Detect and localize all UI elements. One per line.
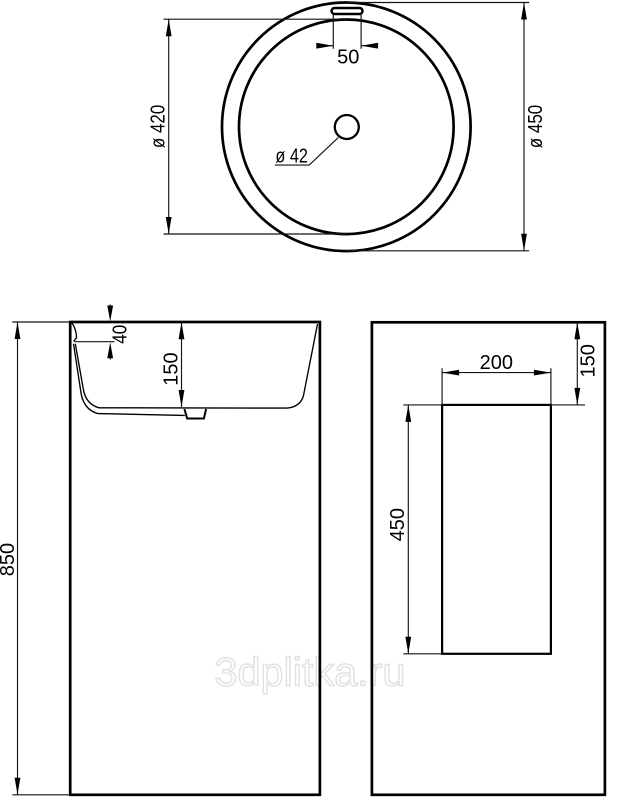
svg-text:450: 450 bbox=[387, 508, 409, 541]
svg-text:ø 450: ø 450 bbox=[525, 105, 547, 149]
svg-text:200: 200 bbox=[480, 352, 513, 374]
svg-text:40: 40 bbox=[109, 325, 131, 344]
svg-text:ø 420: ø 420 bbox=[148, 105, 170, 148]
svg-text:3dplitka.ru: 3dplitka.ru bbox=[215, 650, 406, 694]
svg-text:150: 150 bbox=[161, 352, 183, 385]
svg-text:150: 150 bbox=[578, 344, 600, 377]
svg-text:50: 50 bbox=[337, 47, 359, 69]
svg-text:ø 42: ø 42 bbox=[275, 146, 308, 168]
svg-text:850: 850 bbox=[0, 543, 19, 576]
